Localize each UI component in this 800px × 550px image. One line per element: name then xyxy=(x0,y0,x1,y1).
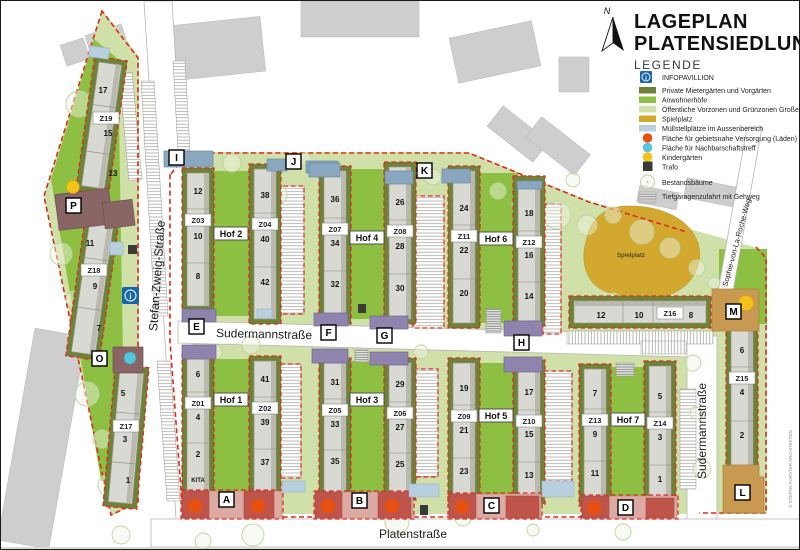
svg-text:H: H xyxy=(518,338,525,349)
marker-p: P xyxy=(66,198,81,213)
house-number: 28 xyxy=(396,242,405,251)
svg-text:Hof 3: Hof 3 xyxy=(356,395,379,405)
svg-text:K: K xyxy=(421,166,429,177)
house-number: 18 xyxy=(525,209,534,218)
svg-text:E: E xyxy=(193,322,200,333)
building-label: Z04 xyxy=(259,220,273,229)
svg-text:C: C xyxy=(488,501,495,512)
marker-m: M xyxy=(726,304,741,319)
marker-o: O xyxy=(92,351,107,366)
building-label: Z19 xyxy=(100,114,113,123)
hof-7-label: Hof 7 xyxy=(611,413,645,426)
hof-6-label: Hof 6 xyxy=(479,232,513,245)
garage-ramp xyxy=(616,363,634,376)
house-number: 10 xyxy=(635,311,644,320)
marker-e: E xyxy=(189,319,204,334)
building-z14: 5 Z14 3 1 xyxy=(644,361,676,506)
svg-text:I: I xyxy=(175,153,178,164)
building-z02: 41 Z02 39 37 xyxy=(249,356,281,496)
trafo-box xyxy=(358,304,366,313)
shop-area-dot xyxy=(321,499,335,513)
trafo-box xyxy=(420,505,428,515)
hof-3-label: Hof 3 xyxy=(350,393,384,406)
hof-5-label: Hof 5 xyxy=(479,409,513,422)
building-label: Z01 xyxy=(192,399,205,408)
hof-4-label: Hof 4 xyxy=(350,231,384,244)
shop-area-dot xyxy=(455,500,469,514)
svg-text:F: F xyxy=(325,328,331,339)
legend-item-infopavillion: i INFOPAVILLION xyxy=(640,71,714,83)
house-number: 42 xyxy=(261,278,270,287)
svg-text:A: A xyxy=(223,495,230,506)
shop-area-dot xyxy=(587,501,601,515)
house-number: 1 xyxy=(126,476,131,485)
house-number: 17 xyxy=(99,86,108,95)
svg-text:i: i xyxy=(129,292,131,301)
house-number: 8 xyxy=(196,272,201,281)
building-z11: 24 Z11 22 20 xyxy=(448,166,480,328)
svg-text:J: J xyxy=(291,157,297,168)
building-z15: 6 Z15 4 2 xyxy=(726,321,758,473)
house-number: 2 xyxy=(196,450,201,459)
info-pavilion-icon: i xyxy=(122,287,139,304)
house-number: 5 xyxy=(658,392,663,401)
house-number: 35 xyxy=(331,457,340,466)
house-number: 11 xyxy=(591,469,600,478)
svg-text:D: D xyxy=(622,503,629,514)
house-number: 10 xyxy=(194,232,203,241)
building-label: Z14 xyxy=(654,419,668,428)
building-label: Z16 xyxy=(664,309,677,318)
house-number: 37 xyxy=(261,458,270,467)
building-label: Z18 xyxy=(88,266,101,275)
shop-area-dot xyxy=(251,499,265,513)
house-number: 6 xyxy=(196,370,201,379)
marker-f: F xyxy=(321,325,336,340)
legend: i INFOPAVILLION Private Mietergärten und… xyxy=(639,71,800,203)
legend-item-laeden: Fläche für gebietsnahe Versorgung (Läden… xyxy=(643,133,797,143)
house-number: 7 xyxy=(97,324,102,333)
legend-item-private-gardens: Private Mietergärten und Vorgärten xyxy=(639,87,771,95)
building-z08: 26 Z08 28 30 xyxy=(384,162,416,324)
house-number: 7 xyxy=(593,389,598,398)
house-number: 38 xyxy=(261,191,270,200)
svg-text:B: B xyxy=(356,496,363,507)
house-number: 2 xyxy=(740,431,745,440)
building-z05: 31 Z05 33 35 xyxy=(319,358,351,498)
building-z06: 29 Z06 27 25 xyxy=(384,358,416,500)
building-label: Z05 xyxy=(329,406,342,415)
svg-text:M: M xyxy=(729,307,737,318)
building-z01: 6 Z01 4 2 KITA xyxy=(182,354,214,496)
svg-text:Hof 2: Hof 2 xyxy=(220,229,243,239)
house-number: 12 xyxy=(597,311,606,320)
north-label: N xyxy=(604,6,611,16)
north-arrow-icon: N xyxy=(602,6,624,51)
house-number: 36 xyxy=(331,195,340,204)
shop-area-dot xyxy=(188,499,202,513)
house-number: 8 xyxy=(689,311,694,320)
svg-text:Öffentliche Vorzonen und Grünz: Öffentliche Vorzonen und Grünzonen Große… xyxy=(662,106,800,114)
svg-text:Fläche für gebietsnahe Versorg: Fläche für gebietsnahe Versorgung (Läden… xyxy=(662,136,797,143)
garage-ramp xyxy=(355,350,368,362)
building-label: Z12 xyxy=(523,238,536,247)
house-number: 11 xyxy=(86,239,95,248)
house-number: 16 xyxy=(525,251,534,260)
building-z04: 38 Z04 40 42 xyxy=(249,164,281,324)
house-number: 5 xyxy=(121,389,126,398)
street-sudermann-v: Sudermannstraße xyxy=(695,383,709,479)
shop-area-dot xyxy=(385,499,399,513)
building-z09: 19 Z09 21 23 xyxy=(448,358,480,503)
marker-d: D xyxy=(618,500,633,515)
marker-g: G xyxy=(377,328,392,343)
building-label: Z17 xyxy=(120,422,133,431)
legend-item-bestandsbaeume: Bestandsbäume xyxy=(641,175,713,189)
svg-text:Hof 7: Hof 7 xyxy=(617,415,640,425)
title-block: LAGEPLAN PLATENSIEDLUNG LEGENDE xyxy=(634,11,800,72)
building-z12: 18 Z12 16 14 xyxy=(513,176,545,326)
house-number: 26 xyxy=(396,198,405,207)
building-z03: 12 Z03 10 8 xyxy=(182,168,214,311)
legend-item-public-zones: Öffentliche Vorzonen und Grünzonen Große… xyxy=(639,106,800,114)
building-label: Z10 xyxy=(523,417,536,426)
svg-text:Fläche für Nachbarschaftstreff: Fläche für Nachbarschaftstreff xyxy=(662,146,756,153)
svg-text:Anwohnerhöfe: Anwohnerhöfe xyxy=(662,98,707,105)
svg-text:INFOPAVILLION: INFOPAVILLION xyxy=(662,75,714,82)
street-sudermann-h: Sudermannstraße xyxy=(216,326,313,342)
house-number: 20 xyxy=(460,289,469,298)
street-platen: Platenstraße xyxy=(379,527,447,541)
site-plan-canvas: Spielplatz 17 xyxy=(1,1,800,550)
legend-item-trafo: Trafo xyxy=(643,162,678,172)
house-number: 15 xyxy=(525,430,534,439)
svg-text:Bestandsbäume: Bestandsbäume xyxy=(662,180,713,187)
building-label: Z15 xyxy=(736,374,749,383)
building-z10: 17 Z10 15 13 xyxy=(513,360,545,504)
kindergarten-dot xyxy=(67,181,80,194)
marker-b: B xyxy=(352,493,367,508)
garage-ramp xyxy=(486,309,501,333)
legend-item-muell: Müllstellplätze im Aussenbereich xyxy=(639,125,763,133)
site-plan: Spielplatz 17 xyxy=(0,0,800,550)
copyright-credit: © STEFAN FORSTER ARCHITEKTEN xyxy=(787,430,793,508)
svg-text:P: P xyxy=(70,201,77,212)
svg-text:G: G xyxy=(381,331,389,342)
house-number: 33 xyxy=(331,420,340,429)
svg-text:Spielplatz: Spielplatz xyxy=(662,117,693,124)
house-number: 25 xyxy=(396,460,405,469)
legend-item-spielplatz: Spielplatz xyxy=(639,116,693,124)
legend-item-anwohnerhoefe: Anwohnerhöfe xyxy=(639,97,707,105)
house-number: 1 xyxy=(658,475,663,484)
page-title-line2: PLATENSIEDLUNG xyxy=(634,33,800,55)
house-number: 31 xyxy=(331,378,340,387)
house-number: 34 xyxy=(331,239,340,248)
house-number: 15 xyxy=(104,129,113,138)
svg-text:Tiefgaragenzufahrt mit Gehweg: Tiefgaragenzufahrt mit Gehweg xyxy=(662,194,760,201)
marker-k: K xyxy=(417,163,432,178)
svg-text:i: i xyxy=(645,75,647,82)
building-z13: 7 Z13 9 11 xyxy=(579,364,611,506)
house-number: 22 xyxy=(460,246,469,255)
building-z16: 12 10 Z16 8 xyxy=(569,296,711,328)
house-number: 9 xyxy=(593,430,598,439)
svg-text:O: O xyxy=(96,354,104,365)
house-number: 23 xyxy=(460,467,469,476)
marker-a: A xyxy=(219,492,234,507)
marker-i: I xyxy=(169,150,184,165)
legend-heading: LEGENDE xyxy=(634,58,702,72)
marker-j: J xyxy=(286,154,301,169)
kita-label: KITA xyxy=(191,478,205,484)
svg-text:Private Mietergärten und Vorgä: Private Mietergärten und Vorgärten xyxy=(662,88,771,95)
house-number: 24 xyxy=(460,204,469,213)
house-number: 39 xyxy=(261,418,270,427)
trafo-box xyxy=(128,245,137,254)
house-number: 27 xyxy=(396,423,405,432)
house-number: 12 xyxy=(194,187,203,196)
house-number: 3 xyxy=(123,435,128,444)
house-number: 21 xyxy=(460,426,469,435)
neighbourhood-dot xyxy=(124,352,136,364)
marker-c: C xyxy=(484,498,499,513)
svg-text:Hof 5: Hof 5 xyxy=(485,411,508,421)
house-number: 3 xyxy=(658,433,663,442)
house-number: 4 xyxy=(740,388,745,397)
svg-text:Hof 1: Hof 1 xyxy=(220,395,243,405)
hof-2-label: Hof 2 xyxy=(214,227,248,240)
playground-label: Spielplatz xyxy=(617,253,645,259)
house-number: 14 xyxy=(525,292,534,301)
svg-text:Hof 4: Hof 4 xyxy=(356,233,379,243)
marker-l: L xyxy=(735,485,750,500)
building-label: Z08 xyxy=(394,227,407,236)
svg-text:Müllstellplätze im Aussenberei: Müllstellplätze im Aussenbereich xyxy=(662,126,763,133)
building-label: Z11 xyxy=(458,232,471,241)
building-label: Z03 xyxy=(192,216,205,225)
house-number: 9 xyxy=(93,282,98,291)
legend-item-nachbarschaft: Fläche für Nachbarschaftstreff xyxy=(643,143,756,153)
house-number: 40 xyxy=(261,235,270,244)
hof-1-label: Hof 1 xyxy=(214,393,248,406)
house-number: 19 xyxy=(460,384,469,393)
house-number: 4 xyxy=(196,413,201,422)
legend-item-kindergarten: Kindergärten xyxy=(643,152,702,162)
marker-h: H xyxy=(514,335,529,350)
svg-text:Kindergärten: Kindergärten xyxy=(662,155,702,162)
page-title-line1: LAGEPLAN xyxy=(634,11,748,33)
building-label: Z07 xyxy=(329,225,342,234)
svg-text:Hof 6: Hof 6 xyxy=(485,234,508,244)
svg-text:L: L xyxy=(739,488,745,499)
house-number: 6 xyxy=(740,346,745,355)
building-label: Z09 xyxy=(458,412,471,421)
building-label: Z06 xyxy=(394,409,407,418)
house-number: 13 xyxy=(525,471,534,480)
house-number: 32 xyxy=(331,280,340,289)
house-number: 13 xyxy=(109,169,118,178)
building-label: Z13 xyxy=(589,416,602,425)
house-number: 41 xyxy=(261,375,270,384)
house-number: 30 xyxy=(396,284,405,293)
house-number: 17 xyxy=(525,388,534,397)
house-number: 29 xyxy=(396,380,405,389)
building-z07: 36 Z07 34 32 xyxy=(319,166,351,324)
building-label: Z02 xyxy=(259,404,272,413)
svg-text:Trafo: Trafo xyxy=(662,165,678,172)
